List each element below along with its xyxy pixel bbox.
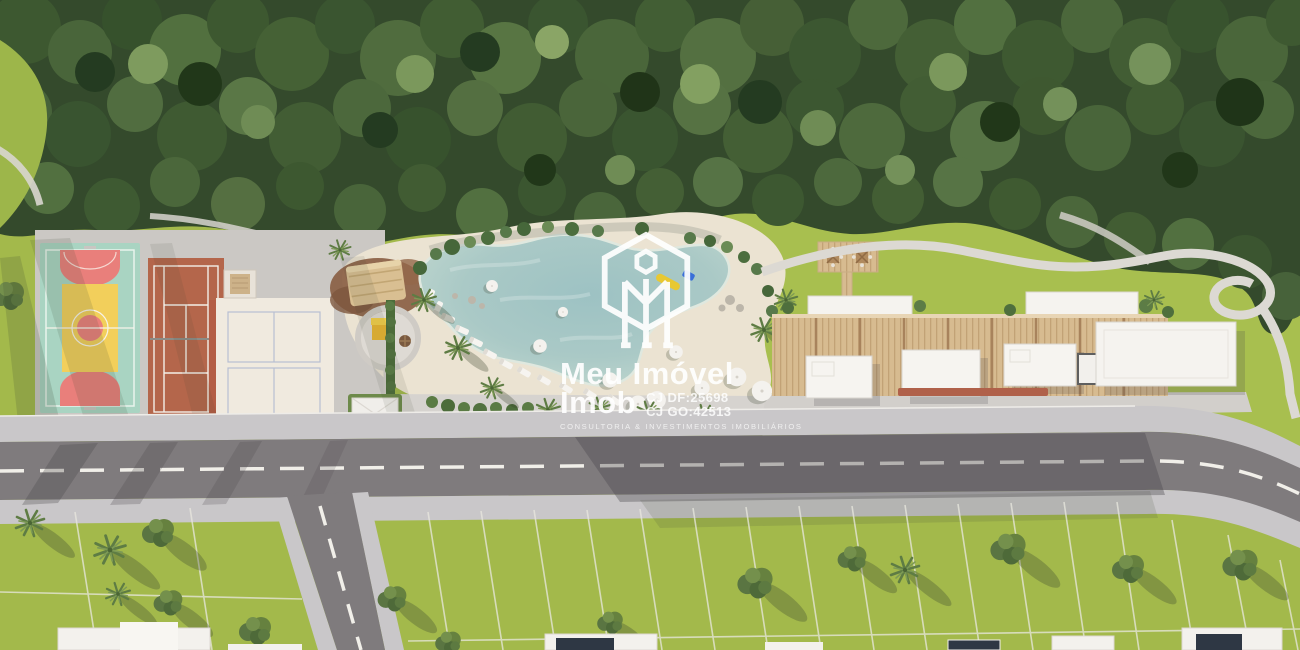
aerial-render-page: { "watermark": { "brand_line1": "Meu Imó… [0, 0, 1300, 650]
sand-kiosk [224, 270, 256, 298]
main-roof [1096, 322, 1236, 386]
terracotta-ledge [898, 388, 1048, 396]
aerial-render [0, 0, 1300, 650]
roof-north-right [1026, 292, 1138, 316]
volleyball-sand [216, 298, 334, 432]
